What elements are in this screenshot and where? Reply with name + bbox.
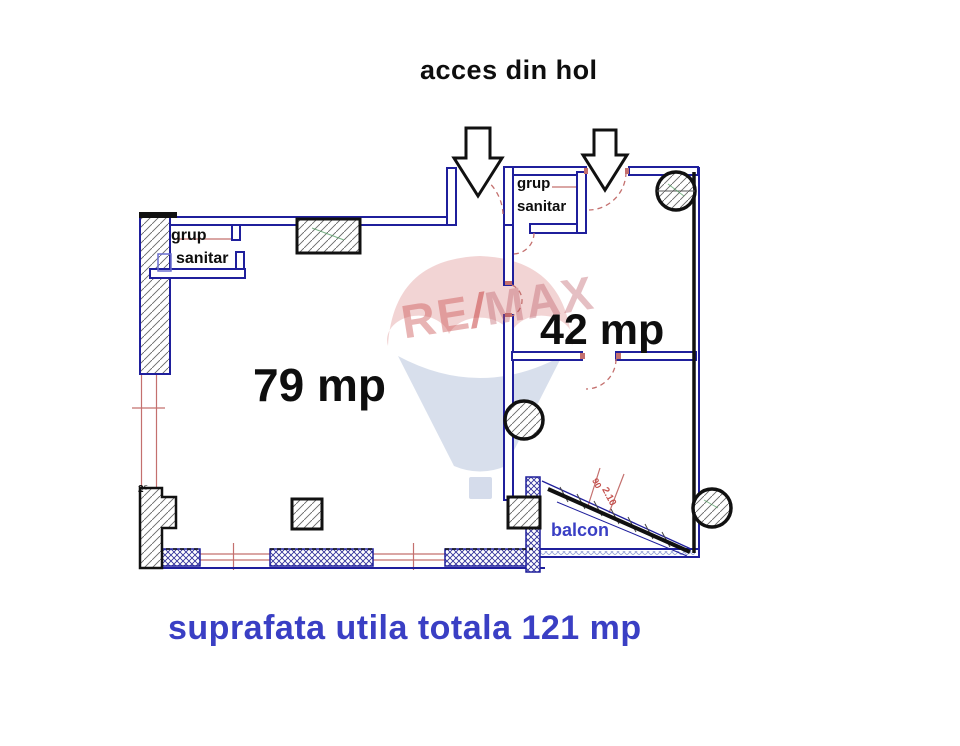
column-rect-bottom [292,499,322,529]
columns [140,172,731,568]
wall-bottom-right-infill [539,551,695,555]
room-label-bath-left-2: sanitar [176,251,228,267]
wall-top-black-cap [139,212,177,218]
watermark-brand-re: RE [398,285,475,348]
door-arc-interior [586,359,616,389]
column-rect-top [297,219,360,253]
room-label-bath-left-1: grup [171,228,207,244]
balloon-basket [469,477,492,499]
wall-bath-left-stub-right [236,252,244,269]
column-circle-right [693,489,731,527]
room-label-balcony: balcon [551,521,609,539]
room-label-bath-right-1: grup [517,176,550,191]
wall-bath-left-stub-top [232,225,240,240]
page-title: acces din hol [420,57,598,84]
column-rect-balcony [508,497,540,528]
wall-top-right-a [504,167,586,175]
wall-partition-mid [504,225,513,285]
wall-entry-stub [447,168,456,225]
wall-bath-right-side [577,172,586,233]
column-circle-mid [505,401,543,439]
wall-left-hatched [140,217,170,374]
floor-plan-page: acces din hol 79 mp 42 mp grup sanitar g… [0,0,960,746]
arrow-entry-living [454,128,502,196]
dimension-wall-mark: 2⁵ [138,485,148,495]
arrow-entry-secondary [583,130,627,190]
room-label-bath-right-2: sanitar [517,199,566,214]
wall-partition-top [504,167,513,225]
total-area-caption: suprafata utila totala 121 mp [168,611,642,645]
wall-top-right-b [629,167,698,175]
door-arc-bath-right [513,233,534,254]
room-label-living: 79 mp [253,362,386,408]
